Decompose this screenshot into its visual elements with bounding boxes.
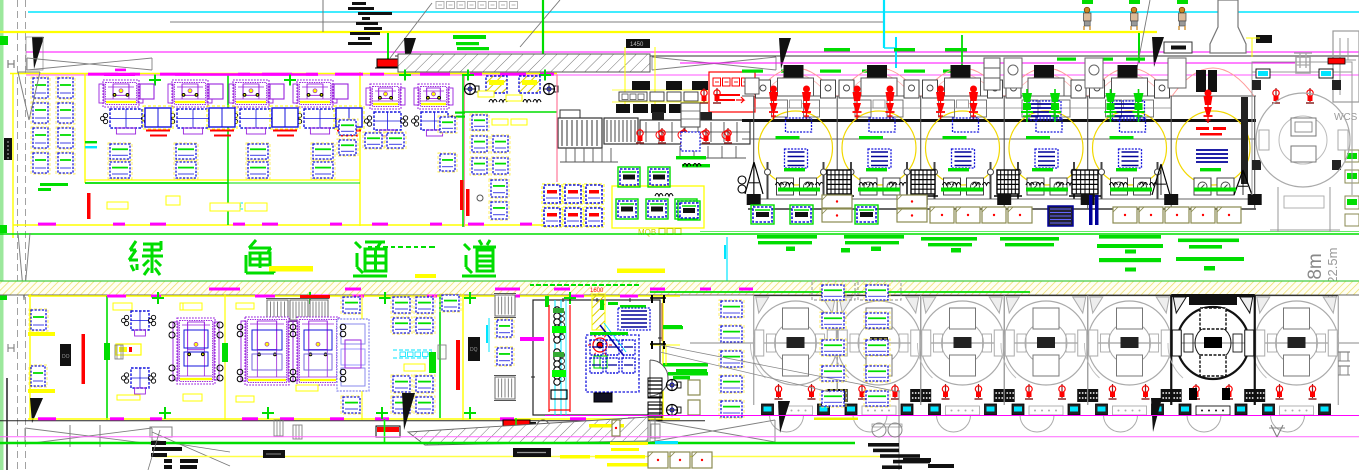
svg-text:MQB: MQB (638, 228, 656, 237)
svg-text:DO: DO (62, 354, 70, 360)
svg-text:1450: 1450 (630, 42, 644, 48)
svg-text:DQ: DQ (470, 347, 478, 353)
svg-text:1600: 1600 (590, 288, 604, 294)
